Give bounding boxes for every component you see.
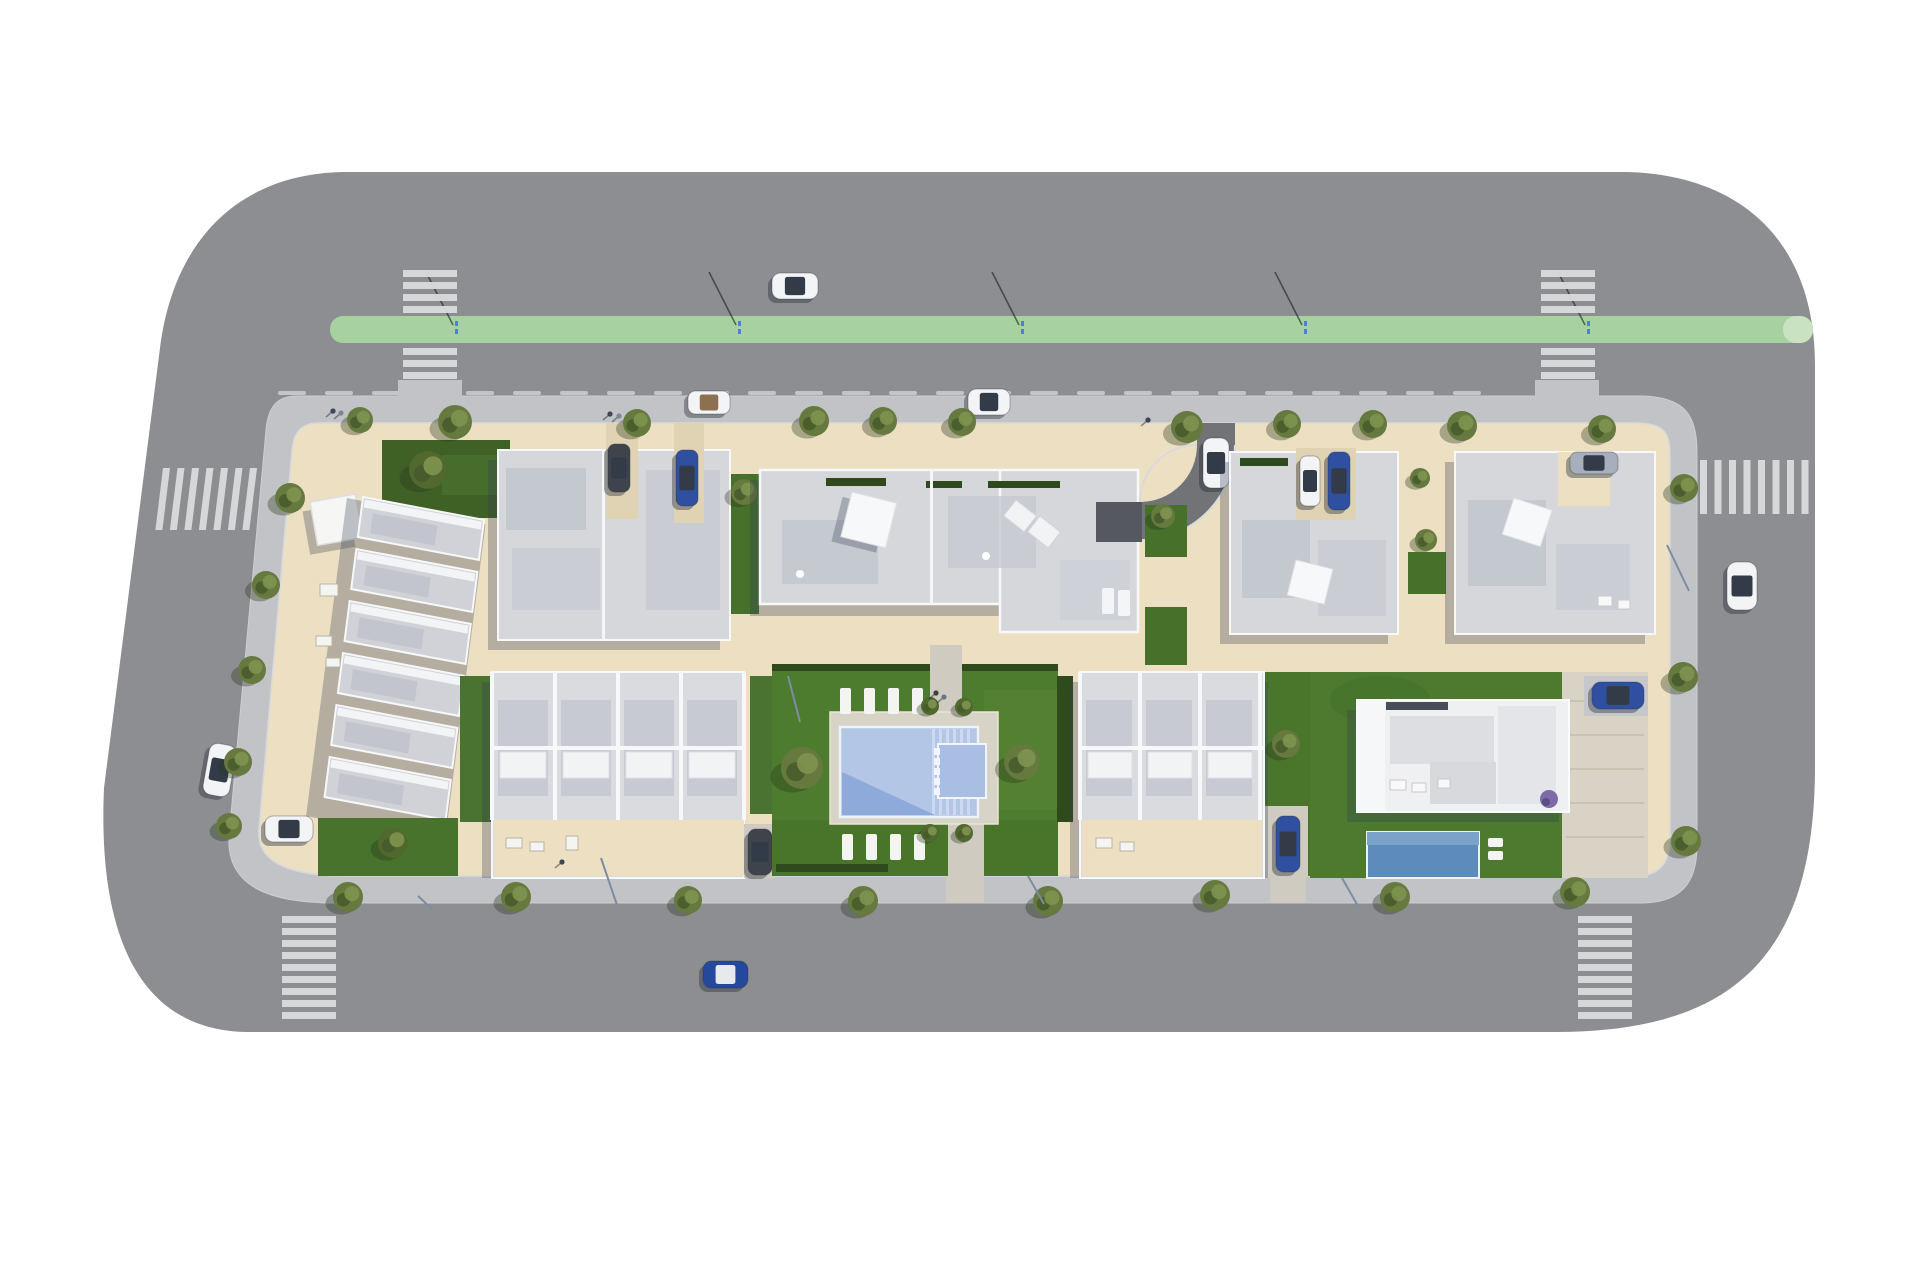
pool-step-notch [934,788,940,795]
road-centerline-dash [1359,391,1387,395]
terrace-furniture [316,636,332,646]
roof-furniture [1598,596,1612,606]
crosswalk-stripe [1541,372,1595,379]
tree-canopy-light [928,700,937,709]
tree-canopy-light [1160,507,1172,519]
road-centerline-dash [654,391,682,395]
unit-terrace [563,752,609,778]
tree-canopy-light [962,827,971,836]
road-centerline-dash [936,391,964,395]
person-dot [330,408,335,413]
garage-door [1096,502,1142,542]
tree-canopy-light [512,886,527,901]
pool-platform [938,744,986,798]
roof-lounger [1102,588,1114,614]
crosswalk-stripe [1578,1012,1632,1019]
road-centerline-dash [466,391,494,395]
crosswalk-stripe [403,282,457,289]
patio-furniture [566,836,578,850]
crosswalk-stripe [1729,460,1736,514]
crosswalk-stripe [1744,460,1751,514]
crosswalk-stripe [403,306,457,313]
pool-step-notch [934,778,940,785]
crosswalk-stripe [1578,976,1632,983]
crosswalk-stripe [403,360,457,367]
patio-furniture [530,842,544,851]
bike-lane-symbol [1587,329,1590,334]
tree-canopy-light [859,890,874,905]
bike-lane-symbol [1021,321,1024,326]
crosswalk-stripe [1787,460,1794,514]
person-dot [941,694,946,699]
unit-terrace [626,752,672,778]
driveway-crossing [1270,876,1306,903]
sun-lounger [866,834,877,860]
villa-roof-band [1357,700,1385,812]
car-glass [679,466,694,491]
sun-lounger [888,688,899,714]
pool-step-notch [934,768,940,775]
bike-lane-symbol [1021,329,1024,334]
crosswalk-stripe [282,940,336,947]
tree-canopy-light [235,752,249,766]
tree-canopy-light [1284,414,1298,428]
crosswalk-stripe [1578,940,1632,947]
car-blue-parked [1324,452,1350,514]
crosswalk-stripe [1541,270,1595,277]
car-white-driveway [261,816,313,846]
tree-canopy-light [1283,734,1297,748]
sun-lounger [842,834,853,860]
crosswalk-stripe [1578,988,1632,995]
unit-terrace [1148,752,1192,778]
crosswalk-stripe [403,348,457,355]
sun-lounger [890,834,901,860]
car-white-top-road [768,273,818,303]
south-middle-town-houses [1057,672,1268,878]
person-dot [559,859,564,864]
crosswalk-stripe [1541,294,1595,301]
villa-skylight [1386,702,1448,710]
sun-lounger [840,688,851,714]
crosswalk-stripe [1541,348,1595,355]
car-glass [278,820,299,838]
car-glass [980,393,998,411]
tree-canopy-light [810,410,825,425]
road-centerline-dash [1265,391,1293,395]
patio-furniture [1120,842,1134,851]
tree-canopy-light [423,456,442,475]
roof-hedge [1240,458,1288,466]
bike-lane-symbol [1304,321,1307,326]
bike-lane-symbol [738,321,741,326]
patio-step-line [1566,768,1644,770]
car-dark-parked [744,829,772,879]
crosswalk-stripe [282,964,336,971]
flower-bush [1540,790,1558,808]
person-dot [607,411,612,416]
car-glass [1732,575,1753,596]
road-centerline-dash [1171,391,1199,395]
patio-furniture [1096,838,1112,848]
roof-hedge [826,478,886,486]
crosswalk-bottom-left [282,916,336,1019]
car-silver-parked [1566,452,1618,478]
person-dot [616,413,621,418]
tree-canopy-light [286,487,301,502]
courtyard-lawn [1408,552,1446,594]
sun-lounger [1488,851,1503,860]
crosswalk-stripe [1541,360,1595,367]
road-centerline-dash [278,391,306,395]
road-centerline-dash [842,391,870,395]
road-centerline-dash [889,391,917,395]
lawn-hedge [776,864,888,872]
roof-hedge [988,481,1060,488]
tree-canopy-light [685,890,699,904]
unit-terrace [1208,752,1252,778]
crosswalk-stripe [1541,306,1595,313]
tree-canopy-light [1599,419,1613,433]
villa-roof-panel [1498,706,1556,804]
roof-furniture [1412,783,1426,792]
villa-pool-shallow [1367,832,1479,845]
tree-canopy-light [1423,532,1434,543]
road-centerline-dash [325,391,353,395]
crosswalk-stripe [282,1000,336,1007]
road-centerline-dash [607,391,635,395]
crosswalk-stripe [1715,460,1722,514]
bike-lane-symbol [1304,329,1307,334]
road-centerline-dash [1030,391,1058,395]
roof-tile-patch [512,548,600,610]
crosswalk-stripe [1578,928,1632,935]
tree-canopy-light [389,832,404,847]
tree-canopy-light [1044,890,1059,905]
car-glass [611,457,626,478]
tree-canopy-light [962,701,971,710]
bike-lane-symbol [738,329,741,334]
tree-canopy-light [1679,666,1694,681]
sun-lounger [1488,838,1503,847]
car-dark-parked [604,444,630,496]
tree-canopy-light [357,411,370,424]
tree-canopy-light [344,886,359,901]
unit-wall-horizontal [492,746,744,750]
garden-walkway-crossing [946,876,984,903]
tree-canopy-light [1391,886,1406,901]
crosswalk-stripe [282,952,336,959]
car-glass [1331,468,1346,494]
car-glass [752,842,769,862]
road-centerline-dash [1218,391,1246,395]
roof-lounger [1118,590,1130,616]
unit-terrace [1088,752,1132,778]
car-blue-bottom-road [699,961,748,992]
tree-canopy-light [797,753,818,774]
unit-terrace [500,752,546,778]
crosswalk-stripe [1700,460,1707,514]
tree-canopy-light [451,410,468,427]
car-glass [1303,470,1317,492]
tree-canopy-light [1571,881,1586,896]
tree-canopy-light [1681,478,1695,492]
roof-tile-patch [506,468,586,530]
villa-roof-panel [1390,716,1494,764]
tree-canopy-light [634,413,648,427]
pool-step-notch [934,748,940,755]
road-centerline-dash [795,391,823,395]
flower-bush-core [1542,798,1550,806]
person-dot [1145,417,1150,422]
crosswalk-stripe [1758,460,1765,514]
sidewalk-bump [398,380,462,398]
tree-canopy-light [1458,415,1473,430]
crosswalk-stripe [282,988,336,995]
tree-canopy-light [1418,471,1428,481]
roof-table [982,552,990,560]
patio-step-line [1566,802,1644,804]
road-centerline-dash [1312,391,1340,395]
crosswalk-stripe [282,916,336,923]
car-glass [785,277,805,295]
car-glass [716,965,736,984]
person-dot [933,690,938,695]
communal-pool-garden [771,645,1059,903]
car-convertible-parked [684,391,730,418]
crosswalk-bottom-right [1578,916,1632,1019]
car-glass [1607,686,1630,705]
tree-canopy-light [249,660,263,674]
tree-canopy-light [1018,749,1036,767]
roof-table [796,570,804,578]
car-glass [700,394,718,410]
crosswalk-stripe [1578,964,1632,971]
ramp-lawn [1145,607,1187,665]
pool-step-notch [934,758,940,765]
road-centerline-dash [1406,391,1434,395]
bike-lane-symbol [1587,321,1590,326]
car-blue-parked [1588,682,1644,713]
patio-step-line [1566,734,1644,736]
terrace-furniture [326,658,340,667]
crosswalk-stripe [1541,282,1595,289]
bike-lane-symbol [455,329,458,334]
car-glass [1583,455,1604,470]
crosswalk-stripe [282,928,336,935]
car-glass [1280,832,1297,857]
bike-lane-end-cap [1783,316,1813,343]
car-blue-parked [672,450,698,510]
tree-canopy-light [1682,830,1697,845]
tree-canopy-light [1211,884,1226,899]
car-white-parked [1296,456,1320,510]
crosswalk-stripe [403,294,457,301]
crosswalk-stripe [403,270,457,277]
crosswalk-stripe [1773,460,1780,514]
crosswalk-stripe [1578,1000,1632,1007]
aerial-site-plan [0,0,1920,1280]
tree-canopy-light [959,412,973,426]
tree-canopy-light [1183,415,1199,431]
roof-furniture [1438,779,1450,788]
road-centerline-dash [1124,391,1152,395]
person-dot [338,410,343,415]
patio-step-line [1566,836,1644,838]
crosswalk-stripe [403,372,457,379]
tree-canopy-light [928,827,937,836]
patio-furniture [506,838,522,848]
lawn-hedge [772,664,1058,671]
terrace-furniture [320,584,338,596]
central-block-divider [930,470,933,604]
bike-lane-symbol [455,321,458,326]
road-centerline-dash [560,391,588,395]
site-plan-stage [0,0,1920,1280]
car-blue-parked [1272,816,1300,876]
crosswalk-stripe [282,976,336,983]
roof-furniture [1618,600,1630,609]
crosswalk-stripe [1578,952,1632,959]
road-centerline-dash [1077,391,1105,395]
crosswalk-stripe [1802,460,1809,514]
unit-terrace [689,752,735,778]
roof-furniture [1390,780,1406,790]
road-centerline-dash [372,391,400,395]
crosswalk-stripe [282,1012,336,1019]
road-centerline-dash [513,391,541,395]
sun-lounger [864,688,875,714]
unit-wall-horizontal [1080,746,1264,750]
tree-canopy-light [263,575,277,589]
road-centerline-dash [1453,391,1481,395]
sidewalk-bump [1535,380,1599,398]
tree-canopy-light [880,411,894,425]
car-white-right-road [1723,562,1757,614]
villa-zone [1310,672,1648,878]
bike-lane [330,316,1813,343]
tree-canopy-light [1370,414,1384,428]
tree-canopy-light [226,817,239,830]
crosswalk-stripe [1578,916,1632,923]
sw-town-houses [460,672,776,879]
road-centerline-dash [748,391,776,395]
